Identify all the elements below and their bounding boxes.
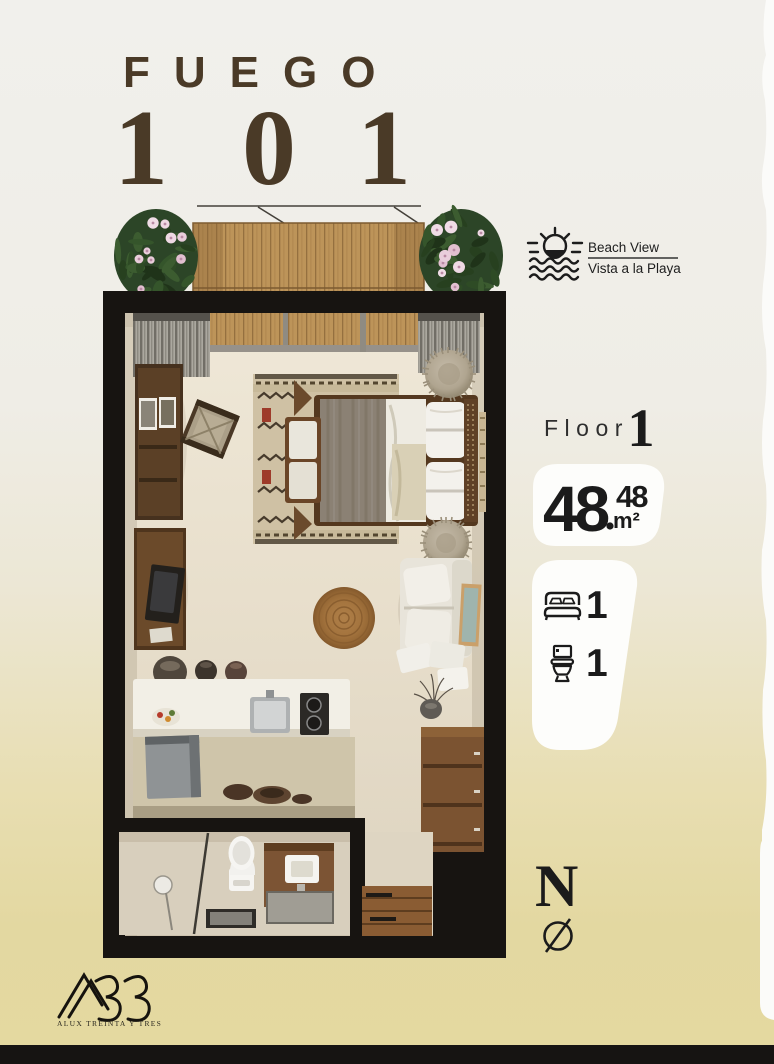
svg-text:0: 0 <box>242 89 296 208</box>
svg-text:48: 48 <box>543 473 609 545</box>
svg-text:1: 1 <box>114 89 168 208</box>
svg-text:1: 1 <box>357 89 411 208</box>
svg-text:m²: m² <box>613 508 640 533</box>
svg-text:Vista a la Playa: Vista a la Playa <box>588 261 681 276</box>
svg-text:1: 1 <box>628 398 655 458</box>
svg-text:1: 1 <box>586 642 608 685</box>
svg-text:Floor: Floor <box>544 415 629 441</box>
svg-text:N: N <box>535 853 578 919</box>
svg-text:1: 1 <box>586 584 608 627</box>
svg-text:Beach View: Beach View <box>588 240 659 255</box>
svg-text:ALUX TREINTA Y TRES: ALUX TREINTA Y TRES <box>57 1019 162 1028</box>
